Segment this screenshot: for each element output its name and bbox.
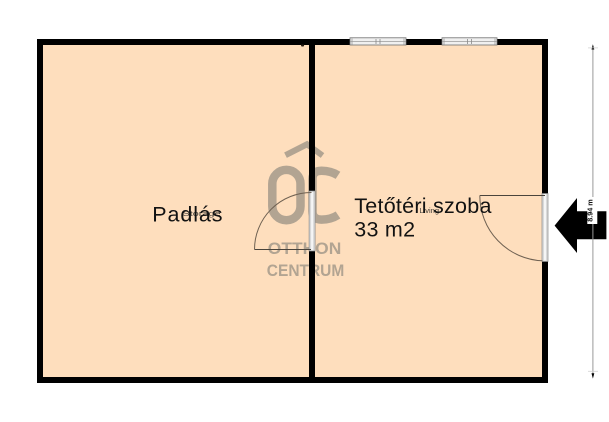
svg-text:CENTRUM: CENTRUM — [267, 261, 345, 280]
svg-text:Tetőtéri szoba: Tetőtéri szoba — [354, 194, 491, 218]
svg-text:8.94 m: 8.94 m — [586, 199, 595, 221]
svg-text:33 m2: 33 m2 — [354, 217, 415, 241]
svg-text:OTTHON: OTTHON — [268, 239, 342, 258]
svg-text:Padlás: Padlás — [152, 202, 223, 226]
